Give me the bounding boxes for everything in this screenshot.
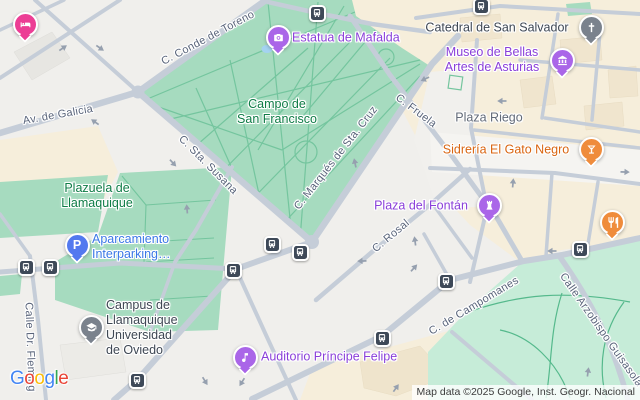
poi-label-auditorio-principe-felipe[interactable]: Auditorio Príncipe Felipe xyxy=(261,350,397,365)
bus-icon xyxy=(575,244,585,254)
bus-icon xyxy=(441,276,451,286)
bus-stop-icon[interactable] xyxy=(225,262,242,279)
bus-stop-icon[interactable] xyxy=(264,236,281,253)
restaurant-pin[interactable] xyxy=(600,210,625,235)
bus-stop-icon[interactable] xyxy=(309,5,326,22)
bus-stop-icon[interactable] xyxy=(473,0,490,15)
area-label-plazuela-llamaquique[interactable]: Plazuela de Llamaquique xyxy=(61,181,133,211)
bus-icon xyxy=(45,262,55,272)
bus-icon xyxy=(267,239,277,249)
camera-icon xyxy=(272,31,285,44)
music-note-icon xyxy=(239,351,252,364)
poi-label-plaza-del-fontan[interactable]: Plaza del Fontán xyxy=(374,199,468,214)
catedral-pin[interactable] xyxy=(579,15,604,40)
campus-pin[interactable] xyxy=(79,315,104,340)
sidreria-pin[interactable] xyxy=(579,137,604,162)
plaza-fontan-pin[interactable] xyxy=(477,193,502,218)
bus-stop-icon[interactable] xyxy=(18,259,35,276)
map-viewport[interactable]: C. Conde de Toreno Av. de Galicia C. Sta… xyxy=(0,0,640,400)
estatua-mafalda-pin[interactable] xyxy=(266,25,291,50)
bus-icon xyxy=(228,265,238,275)
historic-site-icon xyxy=(483,199,496,212)
hotel-pin[interactable] xyxy=(13,12,38,37)
bus-icon xyxy=(312,8,322,18)
map-attribution: Map data ©2025 Google, Inst. Geogr. Naci… xyxy=(412,385,640,400)
hotel-bed-icon xyxy=(19,18,32,31)
bus-stop-icon[interactable] xyxy=(374,330,391,347)
museo-pin[interactable] xyxy=(550,48,575,73)
parking-icon: P xyxy=(73,239,81,252)
bus-icon xyxy=(295,247,305,257)
area-label-plaza-riego[interactable]: Plaza Riego xyxy=(455,111,522,126)
poi-label-aparcamiento-interparking[interactable]: Aparcamiento Interparking… xyxy=(92,232,171,262)
bar-cocktail-icon xyxy=(585,143,598,156)
museum-icon xyxy=(556,54,569,67)
church-cross-icon xyxy=(585,21,598,34)
bus-icon xyxy=(21,262,31,272)
bus-icon xyxy=(377,333,387,343)
poi-label-estatua-mafalda[interactable]: Estatua de Mafalda xyxy=(292,31,400,46)
bus-icon xyxy=(476,1,486,11)
bus-stop-icon[interactable] xyxy=(572,241,589,258)
poi-label-campus-llamaquique[interactable]: Campus de Llamaquique Universidad de Ovi… xyxy=(106,298,178,358)
poi-label-catedral[interactable]: Catedral de San Salvador xyxy=(425,21,568,36)
bus-stop-icon[interactable] xyxy=(438,273,455,290)
bus-stop-icon[interactable] xyxy=(129,372,146,389)
parking-pin[interactable]: P xyxy=(65,233,90,258)
school-icon xyxy=(85,321,98,334)
bus-stop-icon[interactable] xyxy=(42,259,59,276)
bus-stop-icon[interactable] xyxy=(292,244,309,261)
poi-label-sidreria-gato-negro[interactable]: Sidrería El Gato Negro xyxy=(443,143,569,158)
poi-label-museo-bellas-artes[interactable]: Museo de Bellas Artes de Asturias xyxy=(445,45,540,75)
restaurant-icon xyxy=(606,216,619,229)
google-logo[interactable]: Google xyxy=(10,368,68,390)
area-label-campo-san-francisco[interactable]: Campo de San Francisco xyxy=(237,97,317,127)
auditorio-pin[interactable] xyxy=(233,345,258,370)
bus-icon xyxy=(132,375,142,385)
